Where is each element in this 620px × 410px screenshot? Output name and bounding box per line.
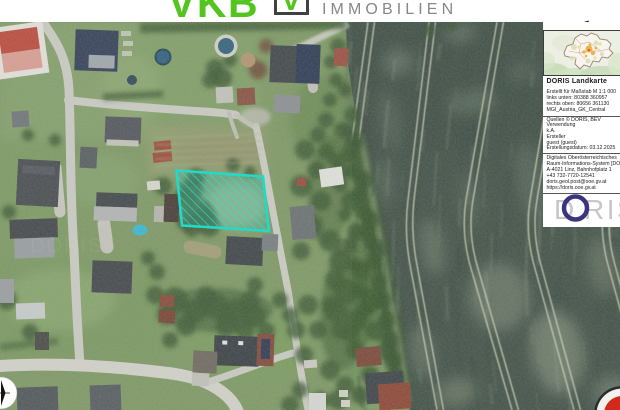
svg-text:DORIS: DORIS — [30, 235, 103, 257]
svg-text:DORIS: DORIS — [336, 236, 409, 258]
svg-text:RIS: RIS — [584, 194, 620, 225]
